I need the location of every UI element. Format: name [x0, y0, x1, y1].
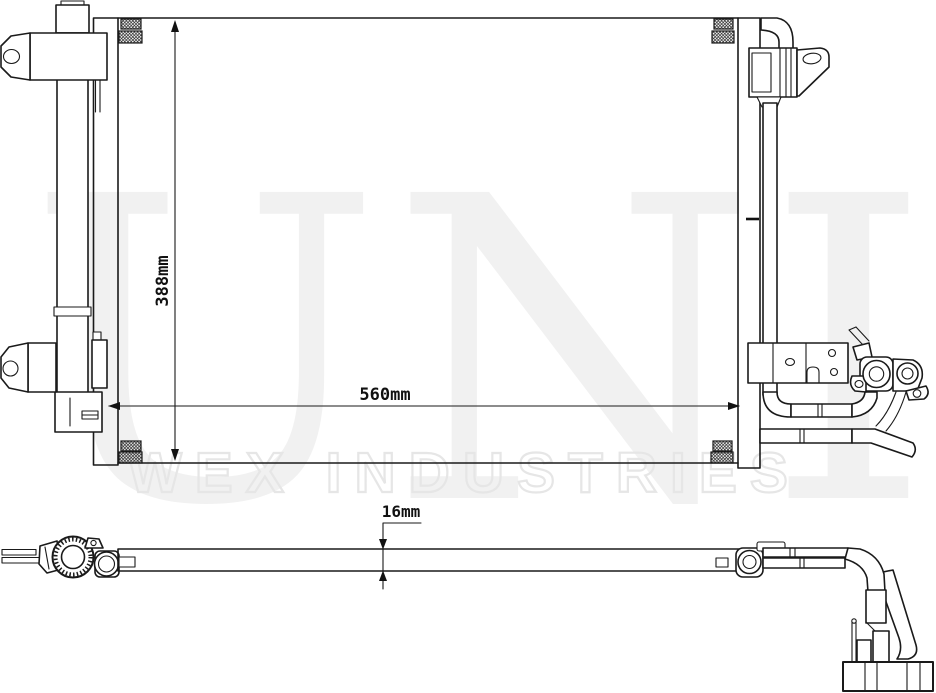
flat-pipe-upper	[763, 548, 848, 557]
port-bracket-plate	[748, 343, 848, 383]
vertical-pipe	[866, 590, 886, 623]
width-dimension-label: 560mm	[359, 385, 410, 405]
condenser-technical-drawing: UNIO WEX INDUSTRIES	[0, 0, 936, 693]
height-dimension-label: 388mm	[153, 255, 173, 306]
industries-watermark: WEX INDUSTRIES	[128, 441, 801, 505]
pipe-lower	[760, 429, 852, 443]
bracket-hole-top	[4, 50, 20, 64]
drier-clamp	[92, 340, 107, 388]
thickness-dimension-label: 16mm	[382, 502, 421, 521]
inlet-elbow-pipe	[761, 18, 793, 52]
mounting-bracket-top	[1, 33, 107, 80]
drawing-canvas: UNIO WEX INDUSTRIES	[0, 0, 936, 693]
drier-seam	[54, 307, 91, 316]
mounting-bracket-bottom	[1, 343, 56, 392]
bracket-hole-bottom	[3, 361, 18, 376]
